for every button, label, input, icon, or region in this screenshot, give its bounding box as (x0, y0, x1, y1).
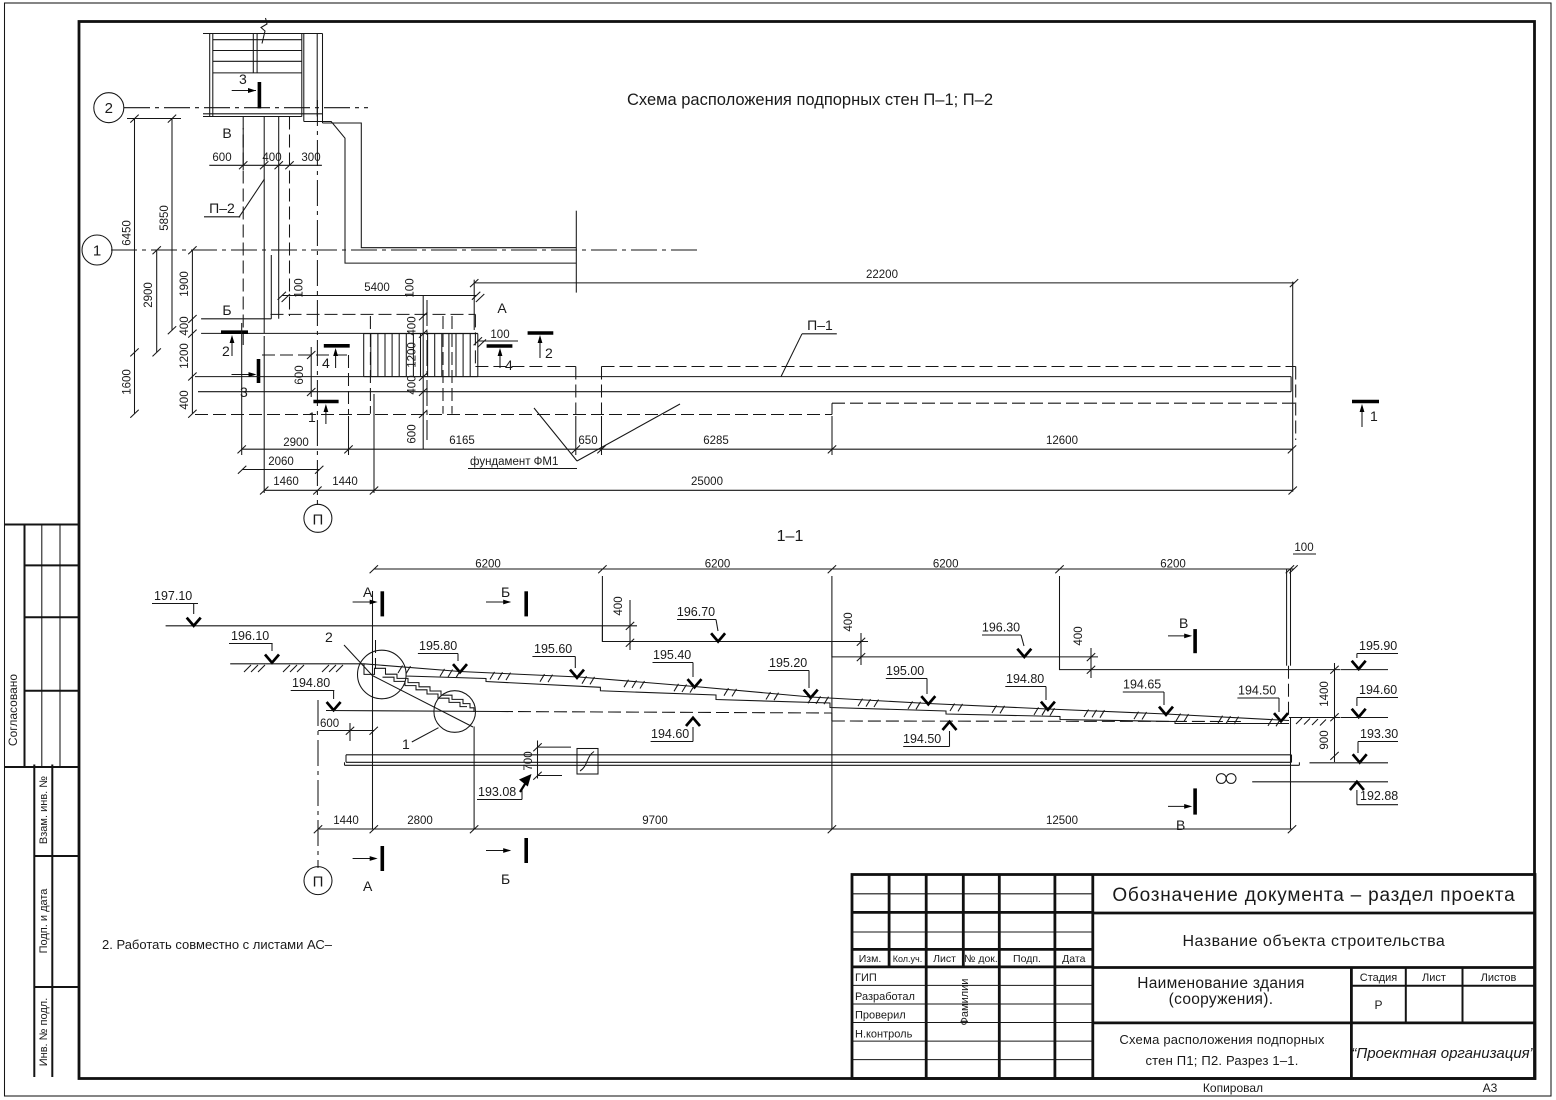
svg-text:П–2: П–2 (209, 200, 235, 216)
svg-text:4: 4 (505, 357, 513, 373)
svg-text:“Проектная организация”: “Проектная организация” (1351, 1045, 1535, 1062)
svg-text:2. Работать совместно с ли: 2. Работать совместно с листами АС– (102, 937, 333, 952)
svg-text:400: 400 (613, 596, 625, 615)
svg-text:Взам. инв. №: Взам. инв. № (38, 776, 50, 844)
svg-text:Наименование здания: Наименование здания (1137, 975, 1305, 992)
svg-text:600: 600 (212, 152, 231, 164)
svg-text:П–1: П–1 (807, 317, 833, 333)
svg-text:ГИП: ГИП (855, 972, 877, 984)
svg-text:400: 400 (1073, 626, 1085, 645)
svg-text:Дата: Дата (1062, 953, 1085, 965)
svg-text:Обозначение документа – раздел: Обозначение документа – раздел проекта (1112, 885, 1515, 906)
svg-text:194.80: 194.80 (292, 676, 330, 690)
svg-text:А: А (497, 300, 507, 316)
svg-text:Кол.уч.: Кол.уч. (893, 954, 923, 964)
svg-text:Изм.: Изм. (859, 953, 882, 965)
svg-text:6165: 6165 (449, 435, 475, 447)
svg-text:194.65: 194.65 (1123, 678, 1161, 692)
svg-text:1440: 1440 (333, 815, 359, 827)
svg-text:6200: 6200 (705, 558, 731, 570)
svg-text:1200: 1200 (179, 343, 191, 369)
svg-text:9700: 9700 (642, 815, 668, 827)
svg-text:196.10: 196.10 (231, 629, 269, 643)
svg-text:100: 100 (294, 278, 306, 297)
svg-text:Подп.: Подп. (1013, 953, 1041, 965)
svg-text:22200: 22200 (866, 269, 898, 281)
svg-text:12500: 12500 (1046, 815, 1078, 827)
svg-text:Фамилии: Фамилии (959, 979, 971, 1026)
svg-text:650: 650 (578, 435, 597, 447)
svg-text:400: 400 (179, 390, 191, 409)
svg-text:2900: 2900 (143, 282, 155, 308)
svg-text:1900: 1900 (179, 271, 191, 297)
svg-text:В: В (1179, 615, 1188, 631)
svg-text:195.90: 195.90 (1359, 639, 1397, 653)
svg-text:5400: 5400 (364, 282, 390, 294)
svg-text:400: 400 (179, 316, 191, 335)
svg-text:194.60: 194.60 (1359, 683, 1397, 697)
svg-text:2900: 2900 (283, 437, 309, 449)
svg-text:Согласовано: Согласовано (6, 674, 20, 746)
svg-text:5850: 5850 (159, 205, 171, 231)
svg-text:1: 1 (1370, 408, 1378, 424)
svg-text:А: А (363, 878, 373, 894)
svg-text:400: 400 (843, 612, 855, 631)
svg-text:Схема расположения подпорных: Схема расположения подпорных (1119, 1032, 1325, 1047)
svg-text:2: 2 (325, 629, 333, 645)
svg-text:25000: 25000 (691, 476, 723, 488)
svg-text:2: 2 (105, 100, 113, 117)
svg-text:3: 3 (239, 71, 247, 87)
svg-text:А: А (363, 584, 373, 600)
svg-text:195.60: 195.60 (534, 642, 572, 656)
svg-text:Б: Б (501, 871, 510, 887)
svg-text:100: 100 (405, 278, 417, 297)
svg-text:900: 900 (1319, 730, 1331, 749)
svg-text:П: П (313, 874, 324, 891)
svg-text:В: В (222, 125, 231, 141)
svg-text:1400: 1400 (1319, 681, 1331, 707)
svg-text:1: 1 (93, 243, 101, 260)
svg-text:1200: 1200 (407, 342, 419, 368)
svg-text:Н.контроль: Н.контроль (855, 1029, 913, 1041)
svg-text:194.50: 194.50 (1238, 684, 1276, 698)
svg-text:Стадия: Стадия (1360, 972, 1398, 984)
svg-text:600: 600 (320, 718, 339, 730)
svg-text:195.00: 195.00 (886, 664, 924, 678)
svg-text:Б: Б (222, 302, 231, 318)
svg-text:1: 1 (308, 409, 316, 425)
svg-text:1–1: 1–1 (777, 528, 804, 545)
svg-text:193.30: 193.30 (1360, 727, 1398, 741)
svg-text:6450: 6450 (122, 220, 134, 246)
svg-text:Название объекта строительства: Название объекта строительства (1182, 933, 1445, 950)
svg-text:1: 1 (402, 736, 410, 752)
svg-text:195.80: 195.80 (419, 639, 457, 653)
svg-text:Подп. и дата: Подп. и дата (38, 888, 50, 954)
svg-text:195.20: 195.20 (769, 656, 807, 670)
svg-text:П: П (313, 512, 324, 529)
svg-text:600: 600 (407, 424, 419, 443)
svg-text:6200: 6200 (1160, 558, 1186, 570)
svg-text:В: В (1176, 817, 1185, 833)
svg-text:2800: 2800 (407, 815, 433, 827)
svg-text:300: 300 (301, 152, 320, 164)
svg-text:Листов: Листов (1481, 972, 1517, 984)
svg-text:1460: 1460 (273, 476, 299, 488)
svg-text:192.88: 192.88 (1360, 789, 1398, 803)
svg-text:Копировал: Копировал (1203, 1081, 1263, 1095)
svg-text:Схема расположения подпорных: Схема расположения подпорных стен П–1; П… (627, 91, 993, 109)
svg-text:Лист: Лист (933, 953, 956, 965)
svg-text:Лист: Лист (1422, 972, 1446, 984)
svg-text:196.70: 196.70 (677, 605, 715, 619)
svg-text:6200: 6200 (933, 558, 959, 570)
svg-text:фундамент ФМ1: фундамент ФМ1 (470, 456, 558, 468)
svg-text:12600: 12600 (1046, 435, 1078, 447)
svg-text:196.30: 196.30 (982, 621, 1020, 635)
svg-text:193.08: 193.08 (478, 785, 516, 799)
svg-text:№ док.: № док. (964, 953, 998, 965)
svg-text:194.80: 194.80 (1006, 672, 1044, 686)
svg-text:100: 100 (1294, 542, 1313, 554)
svg-text:Р: Р (1374, 998, 1382, 1012)
svg-text:Б: Б (501, 584, 510, 600)
svg-text:А3: А3 (1483, 1081, 1498, 1095)
svg-text:100: 100 (490, 329, 509, 341)
svg-text:194.50: 194.50 (903, 732, 941, 746)
svg-text:2: 2 (222, 343, 230, 359)
svg-text:2: 2 (545, 345, 553, 361)
svg-text:600: 600 (294, 365, 306, 384)
svg-text:2060: 2060 (268, 456, 294, 468)
svg-text:4: 4 (322, 355, 330, 371)
svg-text:6285: 6285 (703, 435, 729, 447)
svg-text:1440: 1440 (332, 476, 358, 488)
svg-text:Проверил: Проверил (855, 1010, 906, 1022)
svg-text:(сооружения).: (сооружения). (1169, 991, 1274, 1008)
svg-text:1600: 1600 (122, 369, 134, 395)
svg-text:Разработал: Разработал (855, 991, 915, 1003)
svg-text:195.40: 195.40 (653, 648, 691, 662)
svg-text:194.60: 194.60 (651, 727, 689, 741)
svg-text:197.10: 197.10 (154, 589, 192, 603)
svg-text:700: 700 (523, 751, 535, 770)
svg-text:6200: 6200 (475, 558, 501, 570)
svg-text:стен П1; П2. Разрез 1–1.: стен П1; П2. Разрез 1–1. (1145, 1053, 1298, 1068)
svg-text:400: 400 (407, 316, 419, 335)
svg-text:Инв. № подл.: Инв. № подл. (38, 998, 50, 1067)
svg-text:400: 400 (262, 152, 281, 164)
